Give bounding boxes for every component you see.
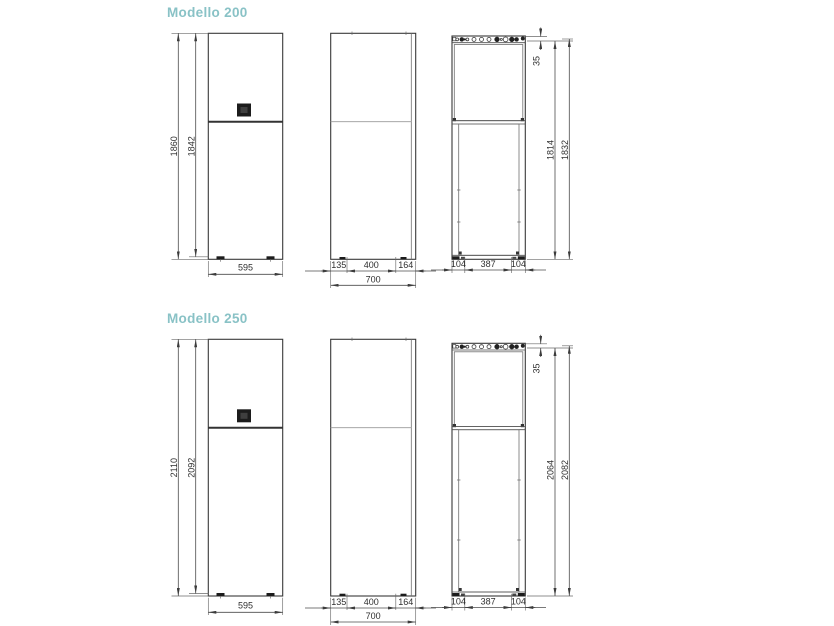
dim-rear-height-frame: 2064	[546, 460, 556, 480]
dim-rear-height-total: 1832	[560, 140, 570, 160]
rear-height-dimensions: 35 1814 1832	[525, 28, 573, 260]
modello-200-drawing: 1860 1842 595	[160, 0, 590, 300]
dim-rear-seg2: 387	[481, 259, 496, 269]
side-depth-dimensions: 135 400 164 700	[305, 594, 436, 625]
dim-front-height-body: 1842	[186, 136, 196, 156]
rear-view: 35 2064 2082 104 387 104	[431, 335, 573, 611]
front-cabinet-outline	[208, 339, 282, 596]
control-panel-display	[241, 107, 248, 113]
front-view: 1860 1842 595	[169, 33, 283, 277]
dim-side-seg1: 135	[331, 597, 346, 607]
dim-front-width: 595	[238, 263, 253, 273]
side-cabinet-outline	[331, 33, 416, 259]
rear-height-dimensions: 35 2064 2082	[525, 335, 573, 596]
dim-rear-seg3: 104	[511, 259, 526, 269]
technical-drawing-page: Modello 200 Modello 250	[0, 0, 834, 626]
dim-side-total-depth: 700	[366, 611, 381, 621]
dim-side-seg3: 164	[398, 260, 413, 270]
dim-rear-seg3: 104	[511, 597, 526, 607]
dim-rear-seg2: 387	[481, 597, 496, 607]
dim-front-height-total: 1860	[169, 136, 179, 156]
side-view: 135 400 164 700	[305, 32, 436, 289]
side-depth-dimensions: 135 400 164 700	[305, 257, 436, 288]
front-view: 2110 2092 595	[169, 339, 283, 615]
dim-rear-top-offset: 35	[532, 56, 542, 66]
front-height-dimensions: 1860 1842	[169, 33, 209, 259]
dim-rear-height-total: 2082	[560, 460, 570, 480]
dim-side-seg2: 400	[364, 260, 379, 270]
control-panel-display	[241, 413, 248, 419]
dim-front-height-total: 2110	[169, 458, 179, 477]
rear-cabinet-outline	[452, 36, 525, 259]
rear-cabinet-outline	[452, 343, 525, 596]
dim-front-width: 595	[238, 601, 253, 611]
side-view: 135 400 164 700	[305, 338, 436, 626]
dim-rear-height-frame: 1814	[546, 140, 556, 160]
dim-side-seg3: 164	[398, 597, 413, 607]
front-width-dimension: 595	[208, 261, 282, 277]
dim-side-seg2: 400	[364, 597, 379, 607]
dim-side-seg1: 135	[331, 260, 346, 270]
dim-rear-seg1: 104	[451, 259, 466, 269]
front-cabinet-outline	[208, 33, 282, 259]
side-cabinet-outline	[331, 339, 416, 596]
front-height-dimensions: 2110 2092	[169, 339, 209, 596]
front-width-dimension: 595	[208, 598, 282, 615]
dim-rear-seg1: 104	[451, 597, 466, 607]
rear-view: 35 1814 1832 104 387 104	[431, 28, 573, 274]
dim-rear-top-offset: 35	[532, 363, 542, 373]
dim-side-total-depth: 700	[366, 274, 381, 284]
dim-front-height-body: 2092	[186, 458, 196, 478]
modello-250-drawing: 2110 2092 595	[160, 306, 590, 626]
